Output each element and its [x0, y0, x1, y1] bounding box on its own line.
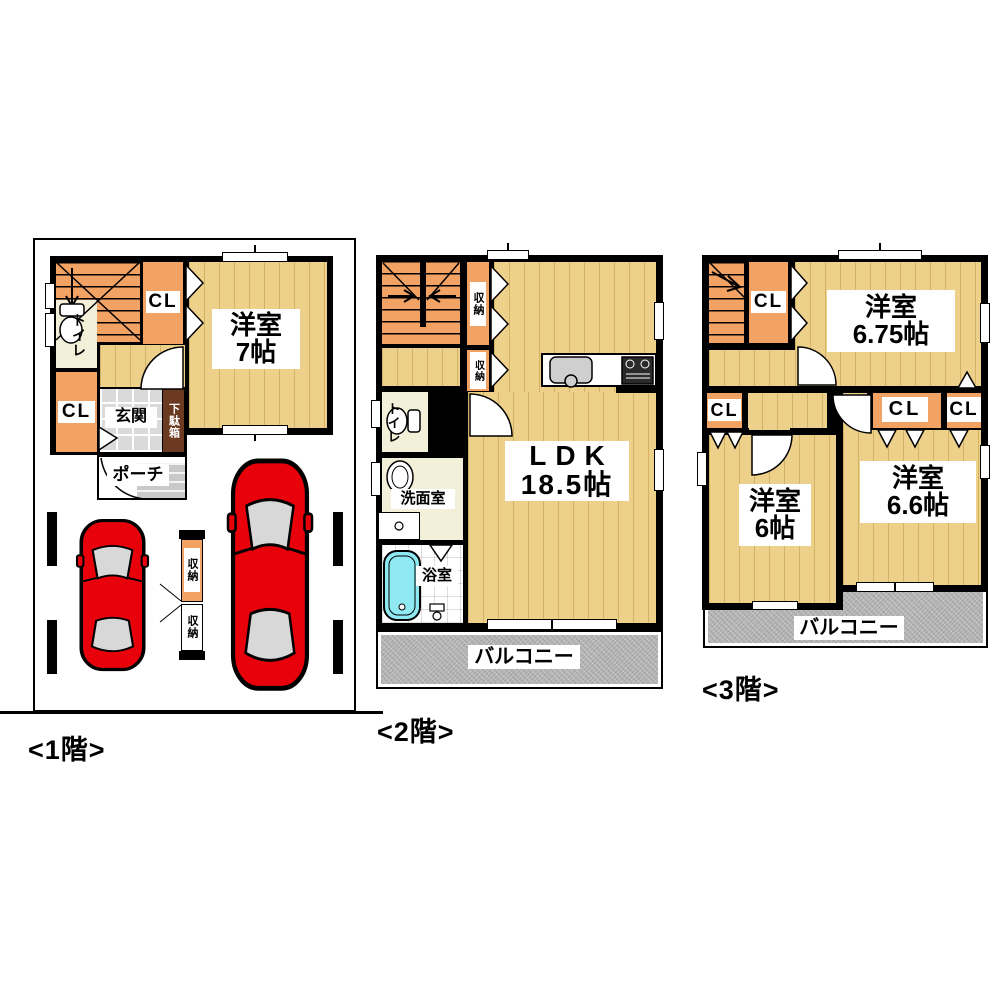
closet-label: CL: [711, 401, 739, 419]
f2-ldk-label: LDK 18.5帖: [505, 441, 629, 501]
storage-label: 収納: [184, 558, 200, 582]
f1-closet-bottom-label: CL: [58, 401, 95, 423]
f3-closet-east-label: CL: [947, 397, 981, 422]
f3-wall: [790, 428, 836, 435]
f3-wall: [827, 393, 833, 430]
f1-parking-marker: [333, 512, 343, 566]
f1-storage-upper-label: 収納: [184, 548, 200, 592]
f3-window-top: [838, 250, 922, 260]
f2-kitchen-wall-stub: [616, 385, 657, 393]
f1-parking-marker: [47, 620, 57, 674]
f3-wall: [780, 386, 836, 393]
f1-porch-label: ポーチ: [107, 464, 169, 486]
f1-storage-lower-label: 収納: [184, 608, 200, 646]
f3-balcony-door: [856, 582, 934, 592]
f3-closet-mid-label: CL: [882, 397, 928, 422]
f3-room6-label: 洋室 6帖: [739, 484, 811, 546]
f3-wall: [836, 393, 843, 605]
balcony-label: バルコニー: [474, 647, 574, 667]
f3-staircase: [709, 262, 745, 343]
f1-window-left-toilet: [45, 313, 55, 347]
storage-label: 収納: [471, 360, 486, 382]
f2-window-left-washroom: [371, 462, 381, 496]
shoe-cabinet-label: 下駄箱: [166, 403, 182, 439]
f3-window-right-1: [980, 303, 990, 343]
f2-window-top: [487, 250, 529, 260]
f2-window-left-toilet: [371, 400, 381, 428]
f3-wall: [702, 386, 747, 393]
f2-balcony-label: バルコニー: [468, 645, 580, 669]
room-size: 6.75帖: [853, 321, 930, 348]
f1-room7-label: 洋室 7帖: [212, 309, 300, 369]
f3-closet-stairs-label: CL: [751, 291, 786, 313]
balcony-label: バルコニー: [799, 618, 899, 638]
ground-line: [0, 711, 383, 714]
toilet-label: トイレ: [384, 402, 403, 444]
room-name: 洋室: [865, 294, 917, 321]
f3-wall: [873, 386, 988, 393]
f1-storage-cap-bottom: [179, 651, 205, 660]
washroom-label: 洗面室: [400, 491, 445, 506]
f2-storage-upper-label: 収納: [470, 282, 486, 326]
f1-closet-top-label: CL: [146, 291, 180, 313]
bathroom-label: 浴室: [422, 568, 452, 583]
f2-kitchen-counter: [541, 353, 657, 387]
room-size: 18.5帖: [521, 471, 614, 500]
f3-window-left: [697, 452, 707, 486]
closet-label: CL: [949, 400, 978, 419]
f3-hall-upper: [709, 349, 795, 386]
f2-ldk-main: [468, 392, 656, 623]
f2-laundry-pan: [378, 512, 420, 540]
f3-room66-label: 洋室 6.6帖: [860, 461, 976, 523]
closet-label: CL: [62, 402, 91, 421]
room-name: 洋室: [892, 465, 944, 492]
room-name: LDK: [520, 442, 614, 471]
room-size: 6.6帖: [887, 492, 949, 519]
f3-window-room6-bottom: [752, 601, 798, 610]
f1-window-top: [222, 252, 288, 262]
f3-balcony-label: バルコニー: [794, 616, 904, 640]
toilet-label: トイレ: [69, 313, 89, 358]
floor2-caption: <2階>: [377, 710, 455, 749]
f2-staircase: [382, 261, 460, 344]
room-size: 7帖: [236, 339, 276, 366]
room-name: 洋室: [749, 488, 801, 515]
floor3-caption: <3階>: [702, 668, 780, 707]
f3-window-right-2: [980, 445, 990, 479]
f3-closet-west-label: CL: [708, 399, 741, 421]
f2-window-right-2: [654, 449, 664, 491]
room-name: 洋室: [230, 312, 282, 339]
floor-plan-canvas: CL CL トイレ 洋室 7帖 玄関 下駄箱 ポーチ 収納 収納 <1階> 収納…: [0, 0, 1000, 1000]
f1-toilet-label: トイレ: [70, 306, 88, 364]
f2-washroom-label: 洗面室: [391, 489, 455, 509]
room-size: 6帖: [755, 515, 795, 542]
f1-entrance-label: 玄関: [105, 407, 157, 428]
f1-hallway: [100, 345, 185, 387]
entrance-label: 玄関: [115, 409, 147, 425]
f2-storage-lower-label: 収納: [470, 352, 486, 389]
f1-parking-marker: [47, 512, 57, 566]
closet-label: CL: [889, 399, 922, 419]
f3-wall: [702, 428, 749, 435]
f3-room675-label: 洋室 6.75帖: [827, 290, 955, 352]
f1-parking-marker: [333, 620, 343, 674]
porch-label: ポーチ: [113, 466, 164, 483]
f2-hallway: [382, 348, 460, 386]
f2-toilet-label: トイレ: [385, 396, 401, 450]
f1-shoe-cabinet-label: 下駄箱: [165, 392, 182, 450]
f3-room66-nook: [843, 393, 867, 430]
storage-label: 収納: [184, 615, 200, 639]
f3-wall: [742, 386, 748, 432]
closet-label: CL: [148, 292, 177, 311]
f1-storage-cap-top: [179, 530, 205, 539]
f1-window-bottom: [222, 425, 288, 435]
f3-hall-lower: [747, 393, 827, 430]
f2-balcony-door: [487, 619, 617, 630]
f3-wall: [702, 343, 795, 350]
floor1-caption: <1階>: [28, 728, 106, 767]
f2-window-right-1: [654, 302, 664, 340]
f1-window-left-stairs: [45, 283, 55, 309]
storage-label: 収納: [470, 292, 486, 316]
closet-label: CL: [754, 292, 783, 311]
f2-bathroom-label: 浴室: [416, 566, 458, 586]
f3-wall: [744, 262, 749, 349]
f3-wall: [788, 255, 795, 350]
